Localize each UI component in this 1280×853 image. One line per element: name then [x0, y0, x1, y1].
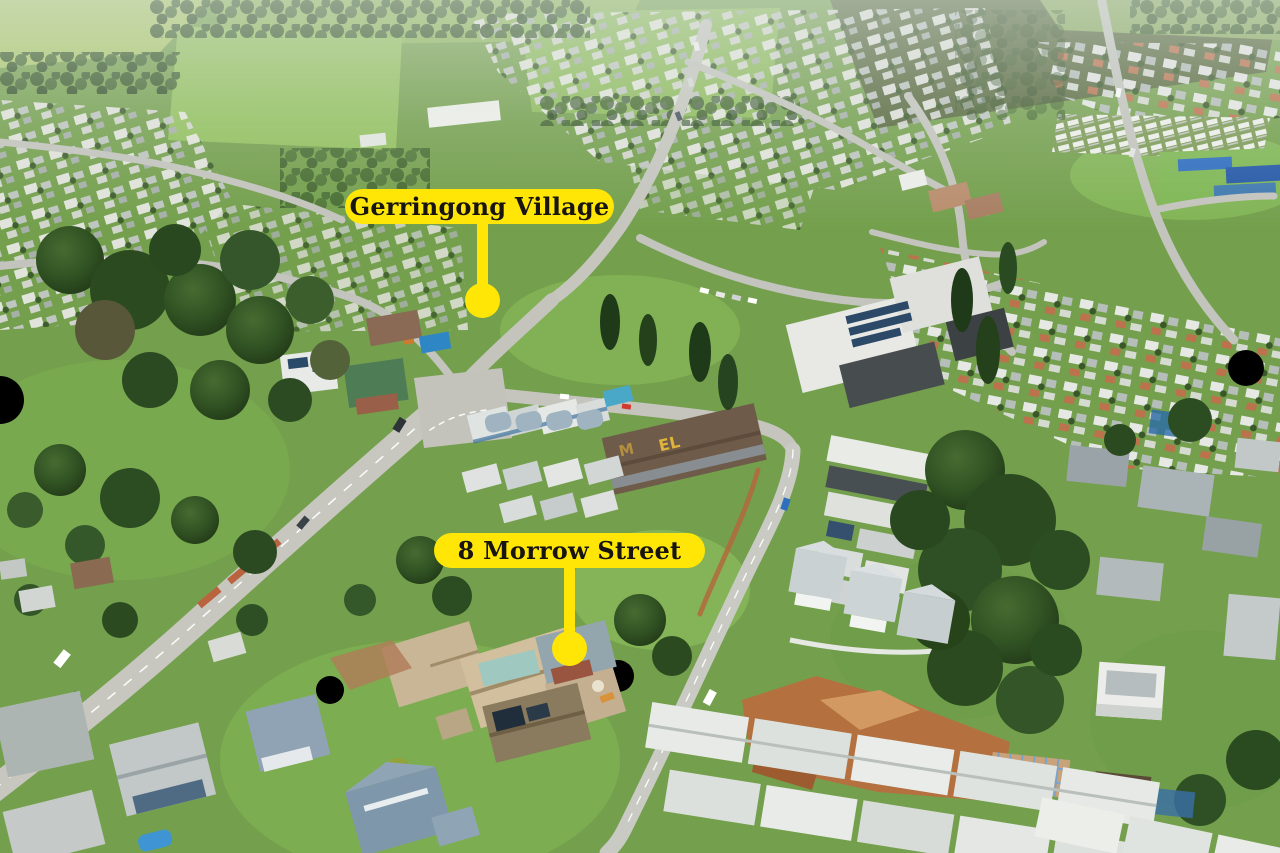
- aerial-photo-stage: M EL: [0, 0, 1280, 853]
- atmospheric-haze: [0, 0, 1280, 230]
- aerial-photo: M EL: [0, 0, 1280, 853]
- location-label-8-morrow-street: 8 Morrow Street: [434, 533, 705, 568]
- location-label-text: Gerringong Village: [350, 192, 610, 221]
- location-label-text: 8 Morrow Street: [458, 536, 682, 565]
- location-dot-8-morrow-street: [552, 631, 587, 666]
- location-dot-gerringong-village: [465, 283, 500, 318]
- location-label-gerringong-village: Gerringong Village: [345, 189, 614, 224]
